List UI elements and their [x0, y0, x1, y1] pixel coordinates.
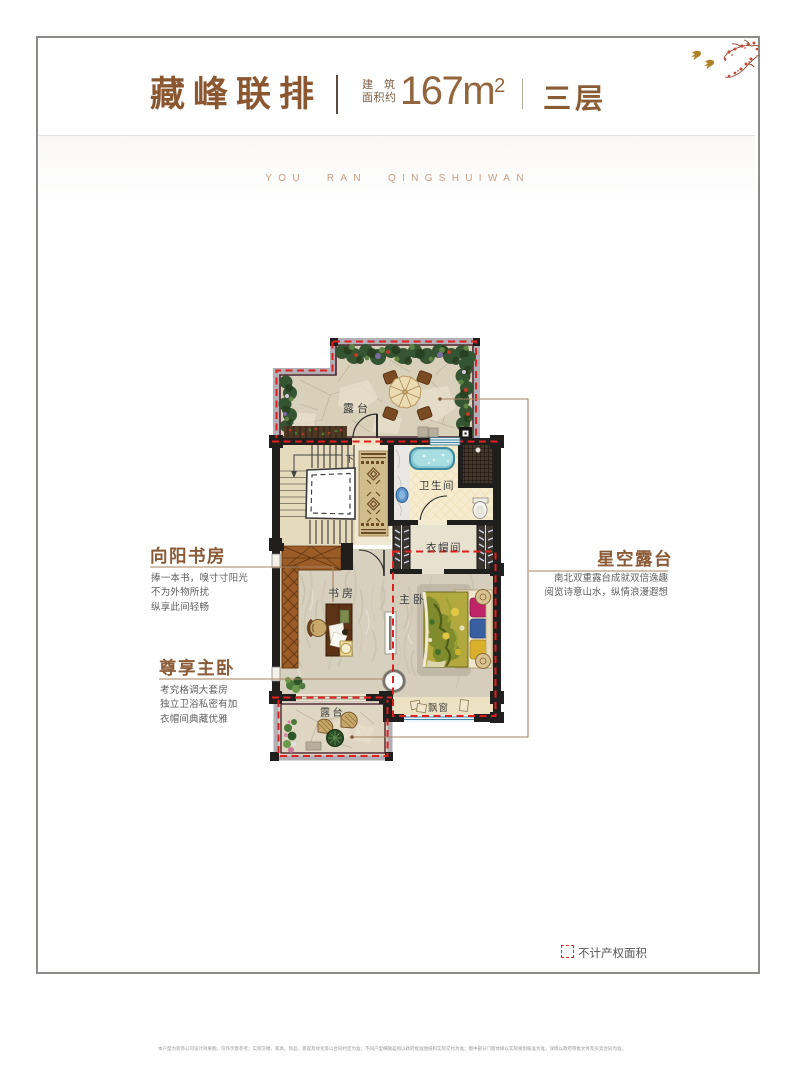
- svg-text:衣帽间: 衣帽间: [426, 541, 462, 554]
- svg-text:下: 下: [345, 454, 354, 464]
- svg-text:主卧: 主卧: [399, 593, 427, 606]
- svg-text:卫生间: 卫生间: [419, 479, 455, 492]
- svg-text:露台: 露台: [320, 706, 345, 719]
- svg-text:露台: 露台: [343, 401, 371, 415]
- svg-text:飘窗: 飘窗: [428, 702, 449, 714]
- svg-text:本户型为装饰公司设计效果图，仅作示意参考；实际交楼、家具、饰: 本户型为装饰公司设计效果图，仅作示意参考；实际交楼、家具、饰品、景观及绿化等以合…: [158, 1045, 626, 1052]
- svg-text:书房: 书房: [328, 587, 356, 600]
